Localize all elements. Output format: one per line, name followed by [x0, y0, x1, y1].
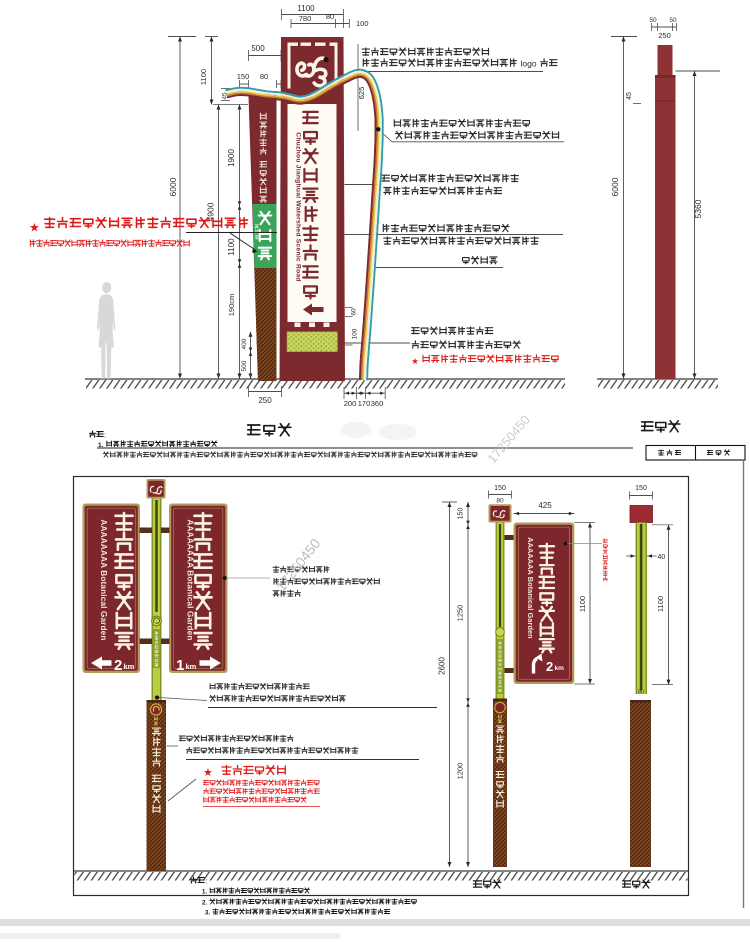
- svg-text:100: 100: [356, 19, 369, 28]
- svg-text:km: km: [124, 662, 135, 671]
- svg-text:80: 80: [326, 12, 334, 21]
- svg-text:1900: 1900: [227, 149, 236, 167]
- svg-text:150: 150: [635, 485, 647, 492]
- svg-text:AAAAAAA Botanical Garden: AAAAAAA Botanical Garden: [526, 537, 535, 638]
- svg-text:AAAAAAAA Botanical Garden: AAAAAAAA Botanical Garden: [186, 519, 196, 640]
- svg-text:★: ★: [203, 767, 213, 779]
- svg-text:400: 400: [241, 338, 248, 349]
- svg-text:50: 50: [649, 17, 657, 24]
- svg-text:★: ★: [29, 221, 40, 235]
- svg-text:100: 100: [352, 328, 359, 339]
- svg-text:★: ★: [411, 356, 419, 366]
- svg-text:150: 150: [494, 485, 506, 492]
- svg-text:2600: 2600: [438, 657, 447, 675]
- svg-text:6000: 6000: [610, 177, 620, 196]
- svg-text:250: 250: [658, 31, 671, 40]
- svg-text:3.: 3.: [205, 911, 210, 917]
- svg-text:40: 40: [658, 554, 666, 561]
- svg-text:250: 250: [258, 396, 272, 405]
- svg-text:1100: 1100: [227, 238, 236, 256]
- svg-text:1100: 1100: [656, 596, 665, 612]
- svg-text:625: 625: [357, 87, 366, 100]
- svg-text:80: 80: [260, 72, 268, 81]
- svg-text:1200: 1200: [456, 763, 465, 780]
- svg-text:80: 80: [638, 690, 644, 696]
- svg-text:km: km: [186, 662, 197, 671]
- svg-text:6000: 6000: [168, 177, 178, 196]
- svg-text:200: 200: [344, 399, 357, 408]
- svg-text:1100: 1100: [297, 4, 315, 13]
- svg-text:2: 2: [114, 657, 122, 674]
- svg-text:425: 425: [538, 501, 552, 510]
- svg-text:500: 500: [251, 44, 265, 53]
- svg-text:150: 150: [237, 72, 250, 81]
- svg-text:80: 80: [496, 498, 504, 505]
- svg-text:1.: 1.: [202, 890, 207, 896]
- svg-text:170: 170: [358, 399, 371, 408]
- svg-text:780: 780: [299, 14, 312, 23]
- svg-text:logo: logo: [521, 59, 537, 69]
- svg-text:500: 500: [241, 360, 248, 371]
- svg-text:190cm: 190cm: [227, 294, 236, 317]
- svg-text::: :: [206, 879, 208, 886]
- svg-text::: :: [104, 433, 106, 440]
- svg-text:AAAAAAAA Botanical Garden: AAAAAAAA Botanical Garden: [99, 519, 109, 640]
- svg-text:Chuzhou Jianghuai Watershed Sc: Chuzhou Jianghuai Watershed Scenic Road: [295, 132, 302, 282]
- svg-text:2: 2: [546, 659, 553, 674]
- svg-text:50: 50: [669, 17, 677, 24]
- svg-text:1100: 1100: [578, 596, 587, 612]
- svg-text:360: 360: [371, 399, 384, 408]
- svg-text:2.: 2.: [202, 901, 207, 907]
- svg-text:45: 45: [626, 92, 633, 100]
- svg-text:60: 60: [351, 308, 358, 316]
- svg-text:5360: 5360: [693, 199, 703, 218]
- svg-text:km: km: [555, 665, 565, 672]
- svg-text:1100: 1100: [199, 69, 208, 85]
- svg-text:150: 150: [458, 508, 465, 520]
- svg-text:1250: 1250: [456, 605, 465, 622]
- svg-text:1: 1: [176, 657, 184, 674]
